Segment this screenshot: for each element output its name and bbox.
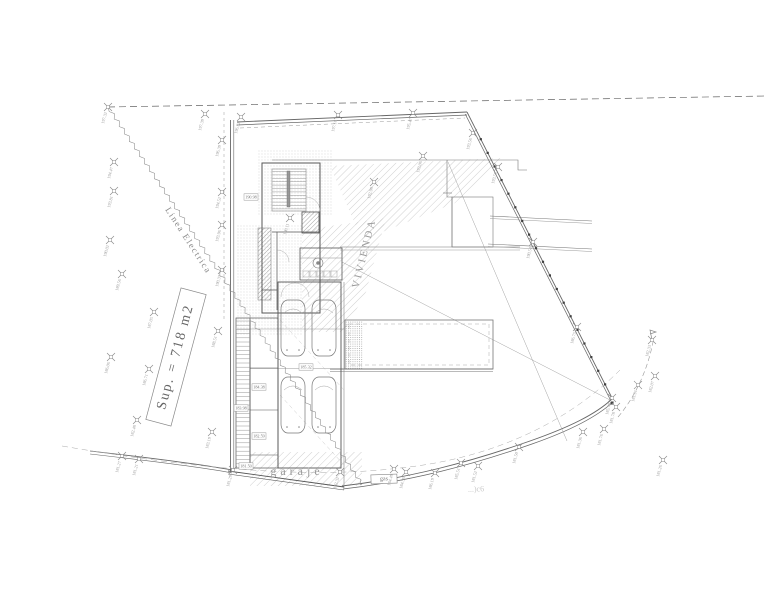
fence-post	[583, 342, 585, 344]
fence-post	[528, 234, 530, 236]
boxed-level-value: 190.98	[245, 195, 257, 200]
boxed-level-value: 182.59	[253, 434, 265, 439]
marker-elevation-label: 196.39	[214, 145, 222, 158]
boxed-level: 181.50	[239, 463, 253, 469]
east-fence-b	[465, 114, 610, 400]
plot-boundary	[108, 96, 766, 471]
long-stair-well	[236, 318, 250, 468]
fence-post	[570, 315, 572, 317]
survey-marker: 182.48	[129, 416, 141, 437]
marker-elevation-label: 197.32	[100, 112, 108, 125]
retaining-a1	[490, 216, 592, 221]
survey-marker: 193.81	[106, 187, 118, 208]
fence-post	[590, 356, 592, 358]
retaining-a2	[490, 219, 592, 224]
survey-marker: 182.07	[647, 372, 659, 393]
survey-marker: 183.19	[204, 428, 216, 449]
fence-post	[521, 220, 523, 222]
survey-marker: 181.91	[630, 381, 642, 402]
marker-elevation-label: 193.81	[106, 196, 114, 209]
marker-elevation-label: 185.51	[453, 468, 461, 481]
marker-elevation-label: 193.50	[490, 172, 498, 185]
marker-elevation-label: 181.29	[225, 475, 233, 488]
retaining-b1	[488, 244, 592, 249]
wall-hatch	[258, 228, 271, 300]
marker-elevation-label: 189.56	[114, 278, 122, 292]
survey-marker: 190.02	[102, 236, 114, 257]
survey-marker: 181.26	[655, 456, 667, 477]
retaining-b2	[488, 247, 592, 252]
survey-marker: 182.33	[644, 336, 656, 357]
north-wall-a	[237, 112, 467, 122]
parking-stall	[281, 377, 305, 433]
side-rooms	[250, 318, 278, 468]
survey-marker: 186.06	[103, 353, 115, 374]
marker-elevation-label: 181.50	[511, 452, 519, 465]
survey-marker: 188.51	[210, 327, 222, 348]
survey-marker: 181.52	[470, 462, 482, 483]
marker-elevation-label: 190.02	[102, 245, 110, 258]
survey-marker: 197.39	[197, 110, 209, 131]
marker-elevation-label: 182.07	[647, 380, 655, 394]
marker-elevation-label: 181.21	[131, 464, 139, 477]
survey-marker: 187.05	[146, 308, 158, 329]
marker-elevation-label: 188.51	[210, 336, 218, 349]
reference-diagonal-b	[342, 262, 610, 400]
fence-post	[597, 370, 599, 372]
survey-marker: 196.52	[233, 113, 245, 134]
fence-post	[487, 152, 489, 154]
marker-elevation-label: 181.36	[575, 436, 583, 450]
boxed-level-value: 184.38	[253, 385, 265, 390]
fence-post	[549, 274, 551, 276]
boxed-level: 190.98	[244, 194, 258, 200]
boxed-level-value: 181.50	[240, 464, 252, 469]
boxed-level: 184.38	[252, 384, 266, 390]
survey-marker: 195.47	[405, 109, 417, 130]
survey-marker: 197.32	[100, 103, 112, 124]
marker-elevation-label: 190.54	[525, 246, 533, 260]
marker-elevation-label: 181.52	[470, 471, 478, 484]
marker-elevation-label: 181.26	[655, 464, 663, 478]
fence-post	[563, 302, 565, 304]
boundary-dashed-top	[108, 96, 766, 107]
boxed-level-value: 185.32	[300, 365, 312, 370]
fence-post	[576, 329, 578, 331]
road-edge-left-a	[90, 451, 232, 470]
survey-marker: 193.56	[465, 129, 477, 150]
marker-elevation-label: 186.71	[141, 374, 149, 387]
road-faint-text: ...)c6	[468, 484, 485, 494]
marker-elevation-label: 194.47	[106, 166, 114, 180]
pool-steps	[345, 320, 363, 369]
fence-post	[535, 247, 537, 249]
survey-marker: 186.71	[141, 365, 153, 386]
parking-stall	[312, 377, 336, 433]
kitchen-sink-drain	[316, 261, 320, 265]
fence-post	[494, 165, 496, 167]
marker-elevation-label: 181.91	[630, 390, 638, 403]
fence-post	[556, 288, 558, 290]
marker-elevation-label: 183.19	[204, 437, 212, 450]
marker-elevation-label: 193.56	[465, 137, 473, 151]
power-line-label: Linea Electrica	[163, 205, 213, 275]
survey-marker: 181.36	[575, 428, 587, 449]
marker-elevation-label: 186.75	[569, 332, 577, 345]
garage-label: garaje	[270, 464, 323, 478]
boxed-level: 182.59	[252, 433, 266, 439]
site-plan-svg: Sup. = 718 m2 Linea Electrica VIVIENDA g…	[0, 0, 780, 600]
marker-elevation-label: 186.06	[103, 361, 111, 375]
fence-post	[500, 179, 502, 181]
boxed-level: 183.98	[234, 405, 248, 411]
survey-marker: 181.76	[596, 425, 608, 446]
marker-elevation-label: 195.47	[405, 117, 413, 131]
fence-post	[604, 383, 606, 385]
fence-post	[514, 206, 516, 208]
fence-post	[480, 138, 482, 140]
marker-elevation-label: 181.27	[114, 460, 122, 474]
fence-post	[507, 193, 509, 195]
road-edge-left-b	[90, 454, 232, 473]
survey-marker: 197.16	[330, 111, 342, 132]
marker-elevation-label: 197.39	[197, 119, 205, 132]
reference-diagonal-a	[448, 162, 567, 441]
north-wall-dash	[240, 118, 465, 128]
marker-elevation-label: 190.37	[214, 274, 222, 288]
stair-rail	[287, 171, 290, 207]
pool-outline	[345, 320, 493, 369]
marker-elevation-label: 196.52	[233, 122, 241, 135]
marker-elevation-label: 193.96	[214, 229, 222, 243]
fence-post	[542, 261, 544, 263]
survey-marker: 194.47	[106, 158, 118, 179]
survey-marker: 189.56	[114, 270, 126, 291]
marker-elevation-label: 182.48	[129, 425, 137, 438]
survey-marker: 181.50	[511, 443, 523, 464]
house-right-wing	[452, 197, 493, 247]
marker-elevation-label: 186.19	[427, 478, 435, 491]
pool-inner-dashed	[349, 324, 489, 365]
area-label-group: Sup. = 718 m2	[146, 288, 206, 426]
marker-elevation-label: 187.05	[146, 317, 154, 330]
boxed-level: 185.32	[299, 364, 313, 370]
boxed-level-value: 183.98	[235, 406, 247, 411]
marker-elevation-label: 194.52	[214, 197, 222, 210]
north-wall-b	[237, 115, 467, 125]
elevator-shaft	[302, 212, 319, 233]
site-plan-drawing: Sup. = 718 m2 Linea Electrica VIVIENDA g…	[0, 0, 780, 600]
marker-elevation-label: 181.76	[596, 433, 604, 447]
marker-elevation-label: 184.56	[398, 476, 406, 490]
